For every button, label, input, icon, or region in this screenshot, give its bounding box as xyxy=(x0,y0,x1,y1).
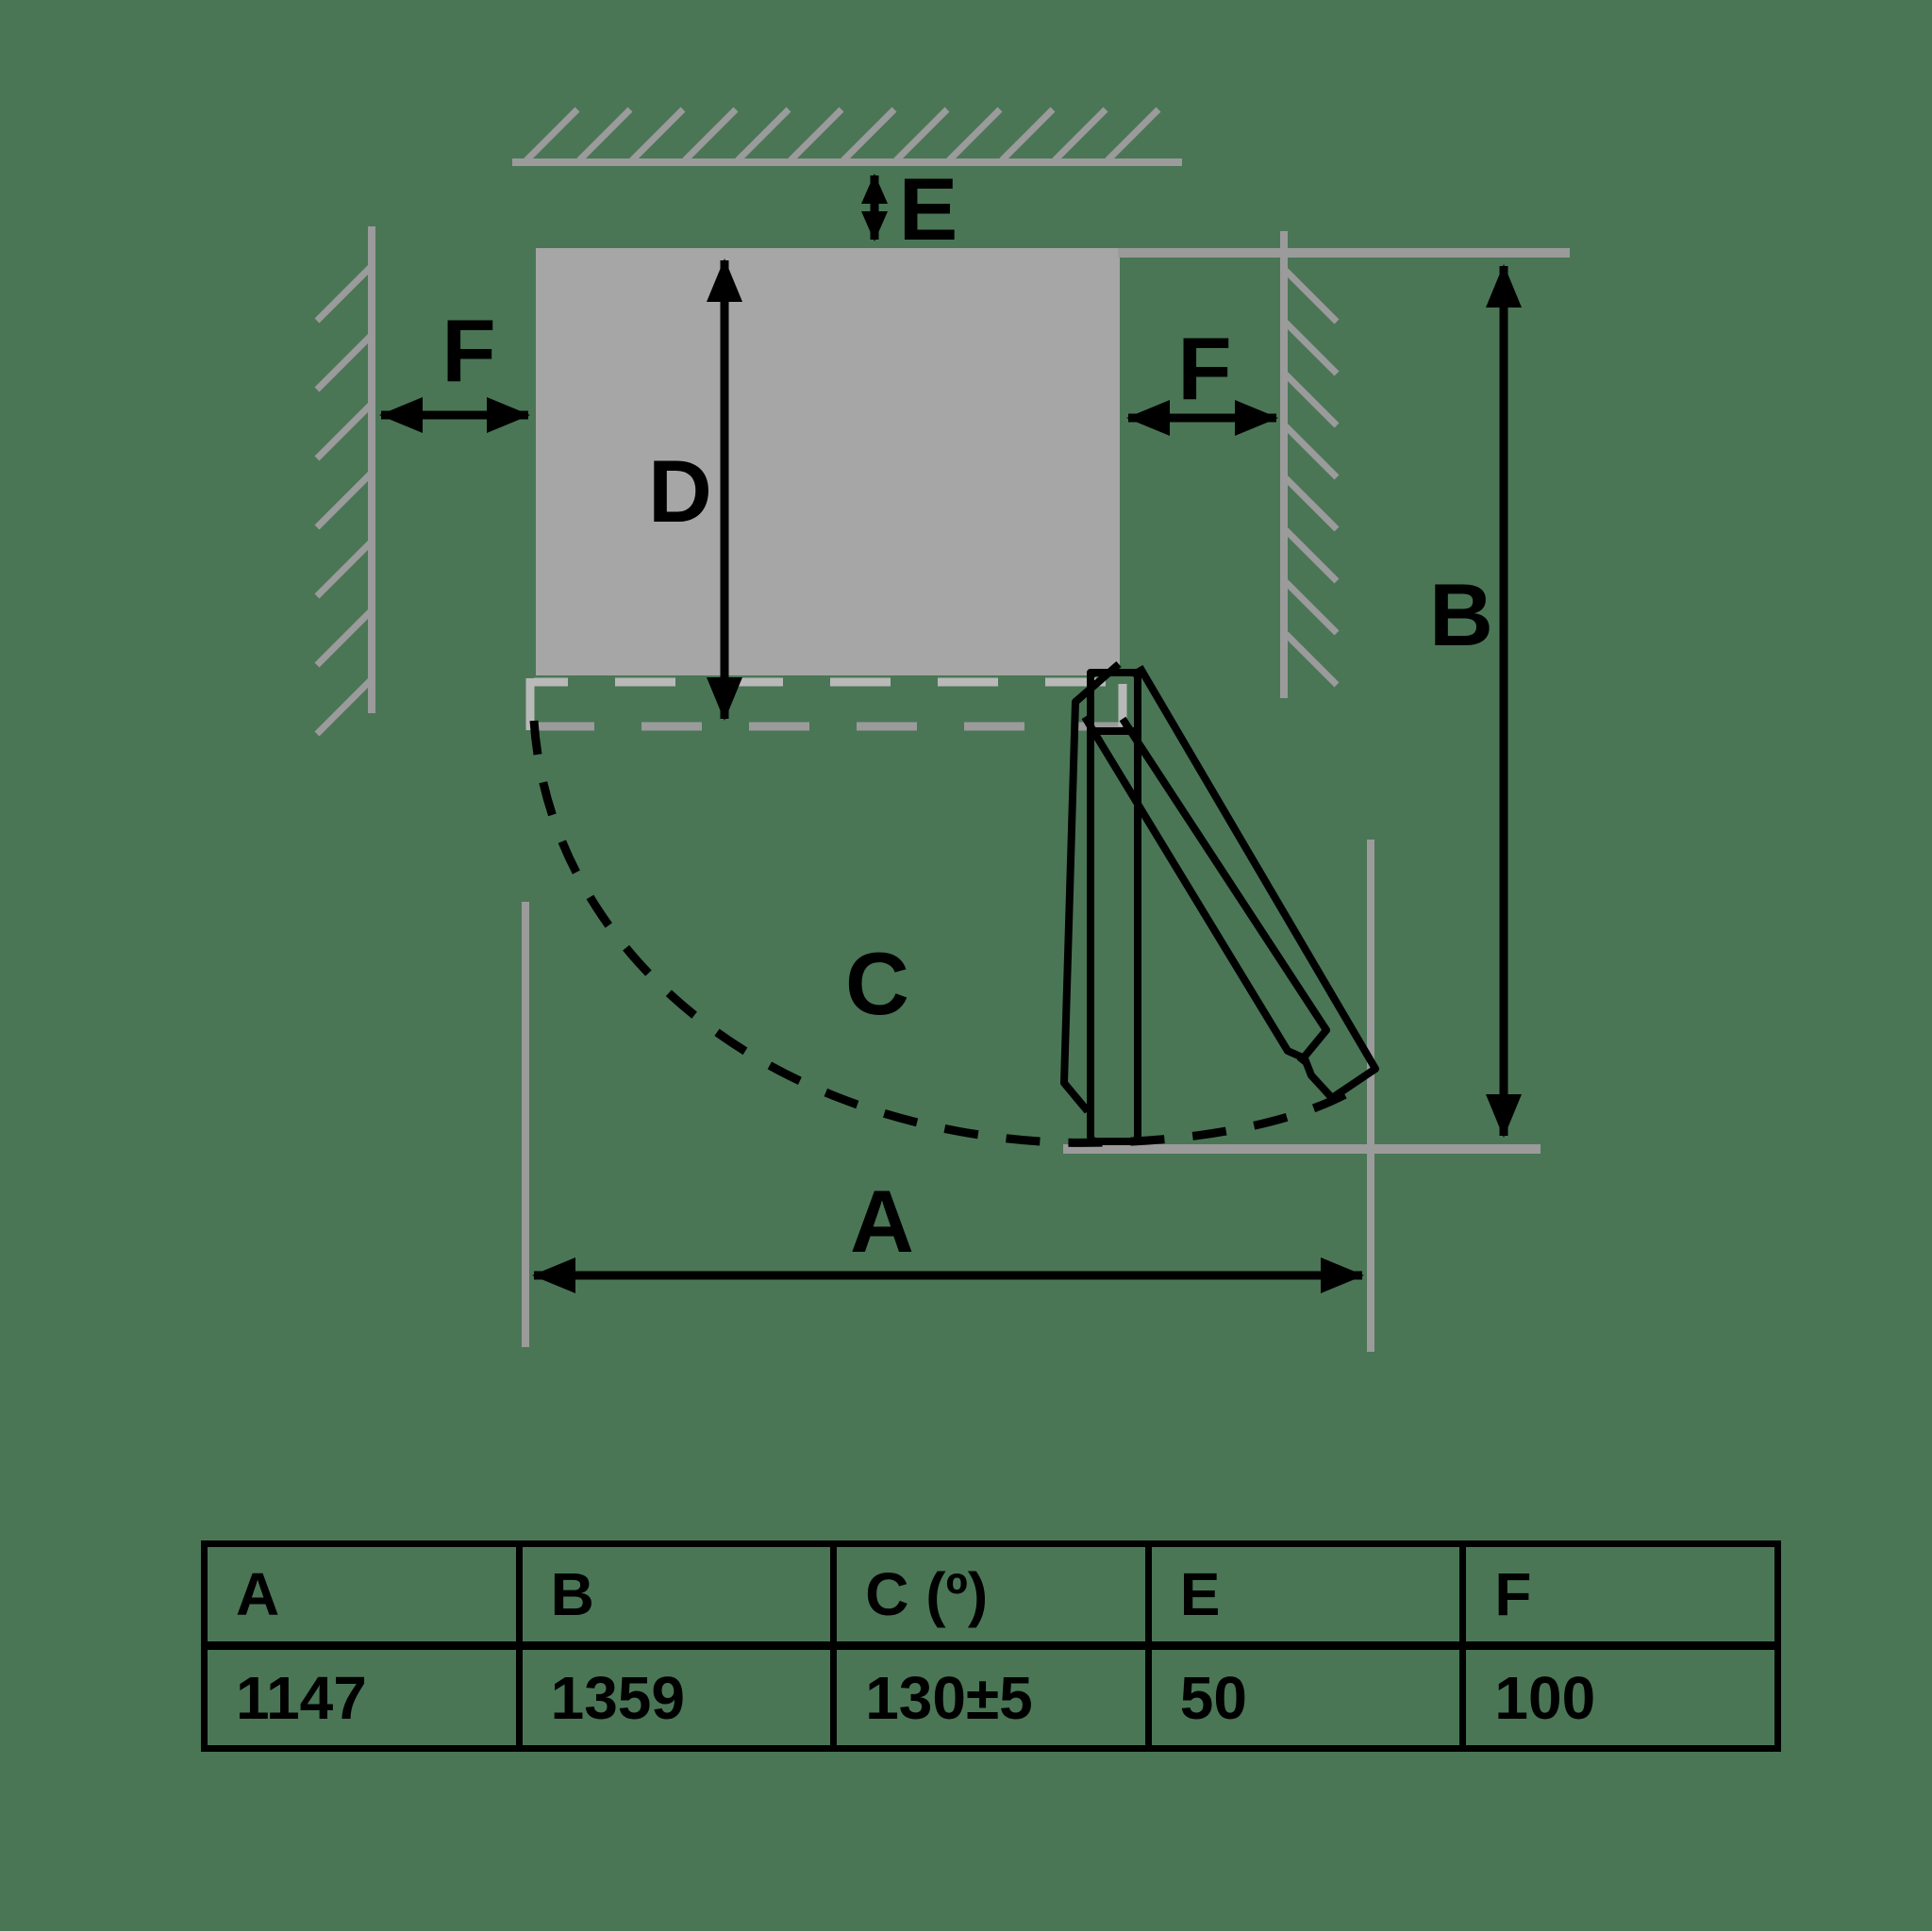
table-header-f: F xyxy=(1463,1544,1778,1646)
table-header-e: E xyxy=(1148,1544,1463,1646)
table-value-b: 1359 xyxy=(519,1646,834,1749)
right-wall xyxy=(1284,231,1337,698)
dimension-table-value-row: 1147 1359 130±5 50 100 xyxy=(205,1646,1778,1749)
table-value-e: 50 xyxy=(1148,1646,1463,1749)
dimension-label-f-right: F xyxy=(1177,325,1231,413)
dimension-label-c: C xyxy=(845,940,909,1028)
installation-clearance-diagram: E F F D B C A A B C (º) E F 1147 1359 13… xyxy=(0,0,1932,1931)
door-open-130 xyxy=(1085,667,1375,1098)
dimension-label-f-left: F xyxy=(441,307,495,395)
top-wall xyxy=(512,109,1182,162)
appliance-body xyxy=(536,248,1120,675)
table-header-c: C (º) xyxy=(834,1544,1149,1646)
left-wall xyxy=(317,226,372,734)
dimension-table-header-row: A B C (º) E F xyxy=(205,1544,1778,1646)
table-value-c: 130±5 xyxy=(834,1646,1149,1749)
dimension-table: A B C (º) E F 1147 1359 130±5 50 100 xyxy=(201,1540,1781,1752)
table-value-f: 100 xyxy=(1463,1646,1778,1749)
table-header-b: B xyxy=(519,1544,834,1646)
dimension-label-d: D xyxy=(648,447,712,536)
door-swing-arc xyxy=(534,721,1364,1142)
table-value-a: 1147 xyxy=(205,1646,520,1749)
dimension-label-b: B xyxy=(1429,571,1493,659)
dimension-label-e: E xyxy=(899,165,958,254)
dimension-label-a: A xyxy=(850,1177,914,1266)
closed-door-dashed-outline xyxy=(530,678,1123,730)
table-header-a: A xyxy=(205,1544,520,1646)
